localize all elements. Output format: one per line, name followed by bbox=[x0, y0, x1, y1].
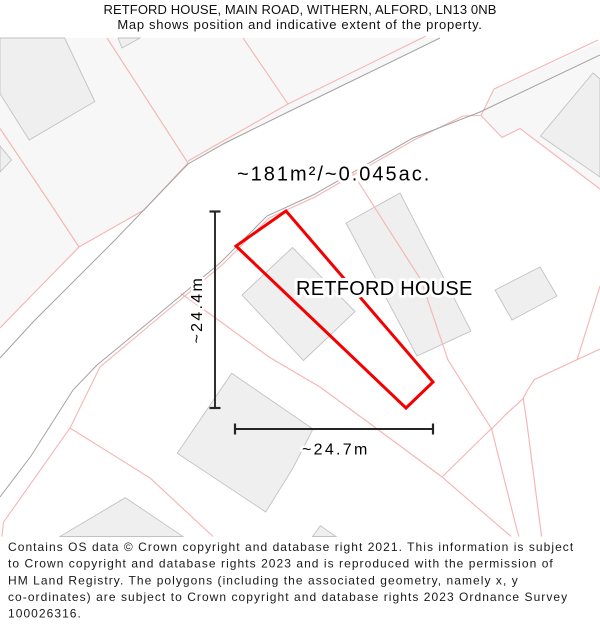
svg-text:RETFORD HOUSE: RETFORD HOUSE bbox=[296, 278, 473, 300]
svg-text:Map shows position and indicat: Map shows position and indicative extent… bbox=[117, 17, 482, 32]
svg-text:co-ordinates) are subject to C: co-ordinates) are subject to Crown copyr… bbox=[8, 590, 568, 604]
svg-text:HM Land Registry. The polygons: HM Land Registry. The polygons (includin… bbox=[8, 573, 519, 587]
svg-text:100026316.: 100026316. bbox=[8, 607, 82, 621]
svg-text:~24.4m: ~24.4m bbox=[189, 276, 206, 344]
svg-text:Contains OS data © Crown copyr: Contains OS data © Crown copyright and d… bbox=[8, 540, 574, 554]
svg-text:to Crown copyright and databas: to Crown copyright and database rights 2… bbox=[8, 557, 554, 571]
svg-text:~24.7m: ~24.7m bbox=[302, 442, 370, 459]
svg-text:RETFORD HOUSE, MAIN ROAD, WITH: RETFORD HOUSE, MAIN ROAD, WITHERN, ALFOR… bbox=[104, 2, 497, 17]
svg-text:~181m²/~0.045ac.: ~181m²/~0.045ac. bbox=[237, 164, 431, 186]
